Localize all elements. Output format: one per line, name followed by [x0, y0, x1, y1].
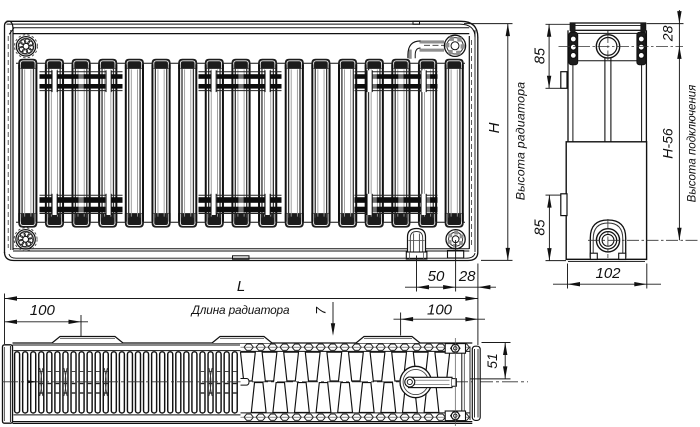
svg-text:H: H [486, 122, 503, 133]
svg-text:50: 50 [428, 268, 445, 285]
svg-text:100: 100 [30, 302, 56, 319]
svg-text:28: 28 [458, 268, 476, 285]
svg-text:51: 51 [484, 353, 500, 369]
svg-text:Высота подключения: Высота подключения [687, 85, 699, 203]
svg-text:102: 102 [595, 265, 621, 282]
svg-text:H-56: H-56 [659, 128, 675, 159]
svg-text:Длина радиатора: Длина радиатора [190, 303, 290, 317]
svg-text:85: 85 [532, 47, 548, 64]
svg-text:L: L [237, 278, 245, 295]
svg-text:100: 100 [427, 302, 453, 319]
svg-text:85: 85 [533, 219, 549, 236]
svg-text:Высота радиатора: Высота радиатора [514, 82, 528, 201]
svg-text:7: 7 [313, 306, 329, 315]
svg-text:28: 28 [659, 25, 675, 42]
